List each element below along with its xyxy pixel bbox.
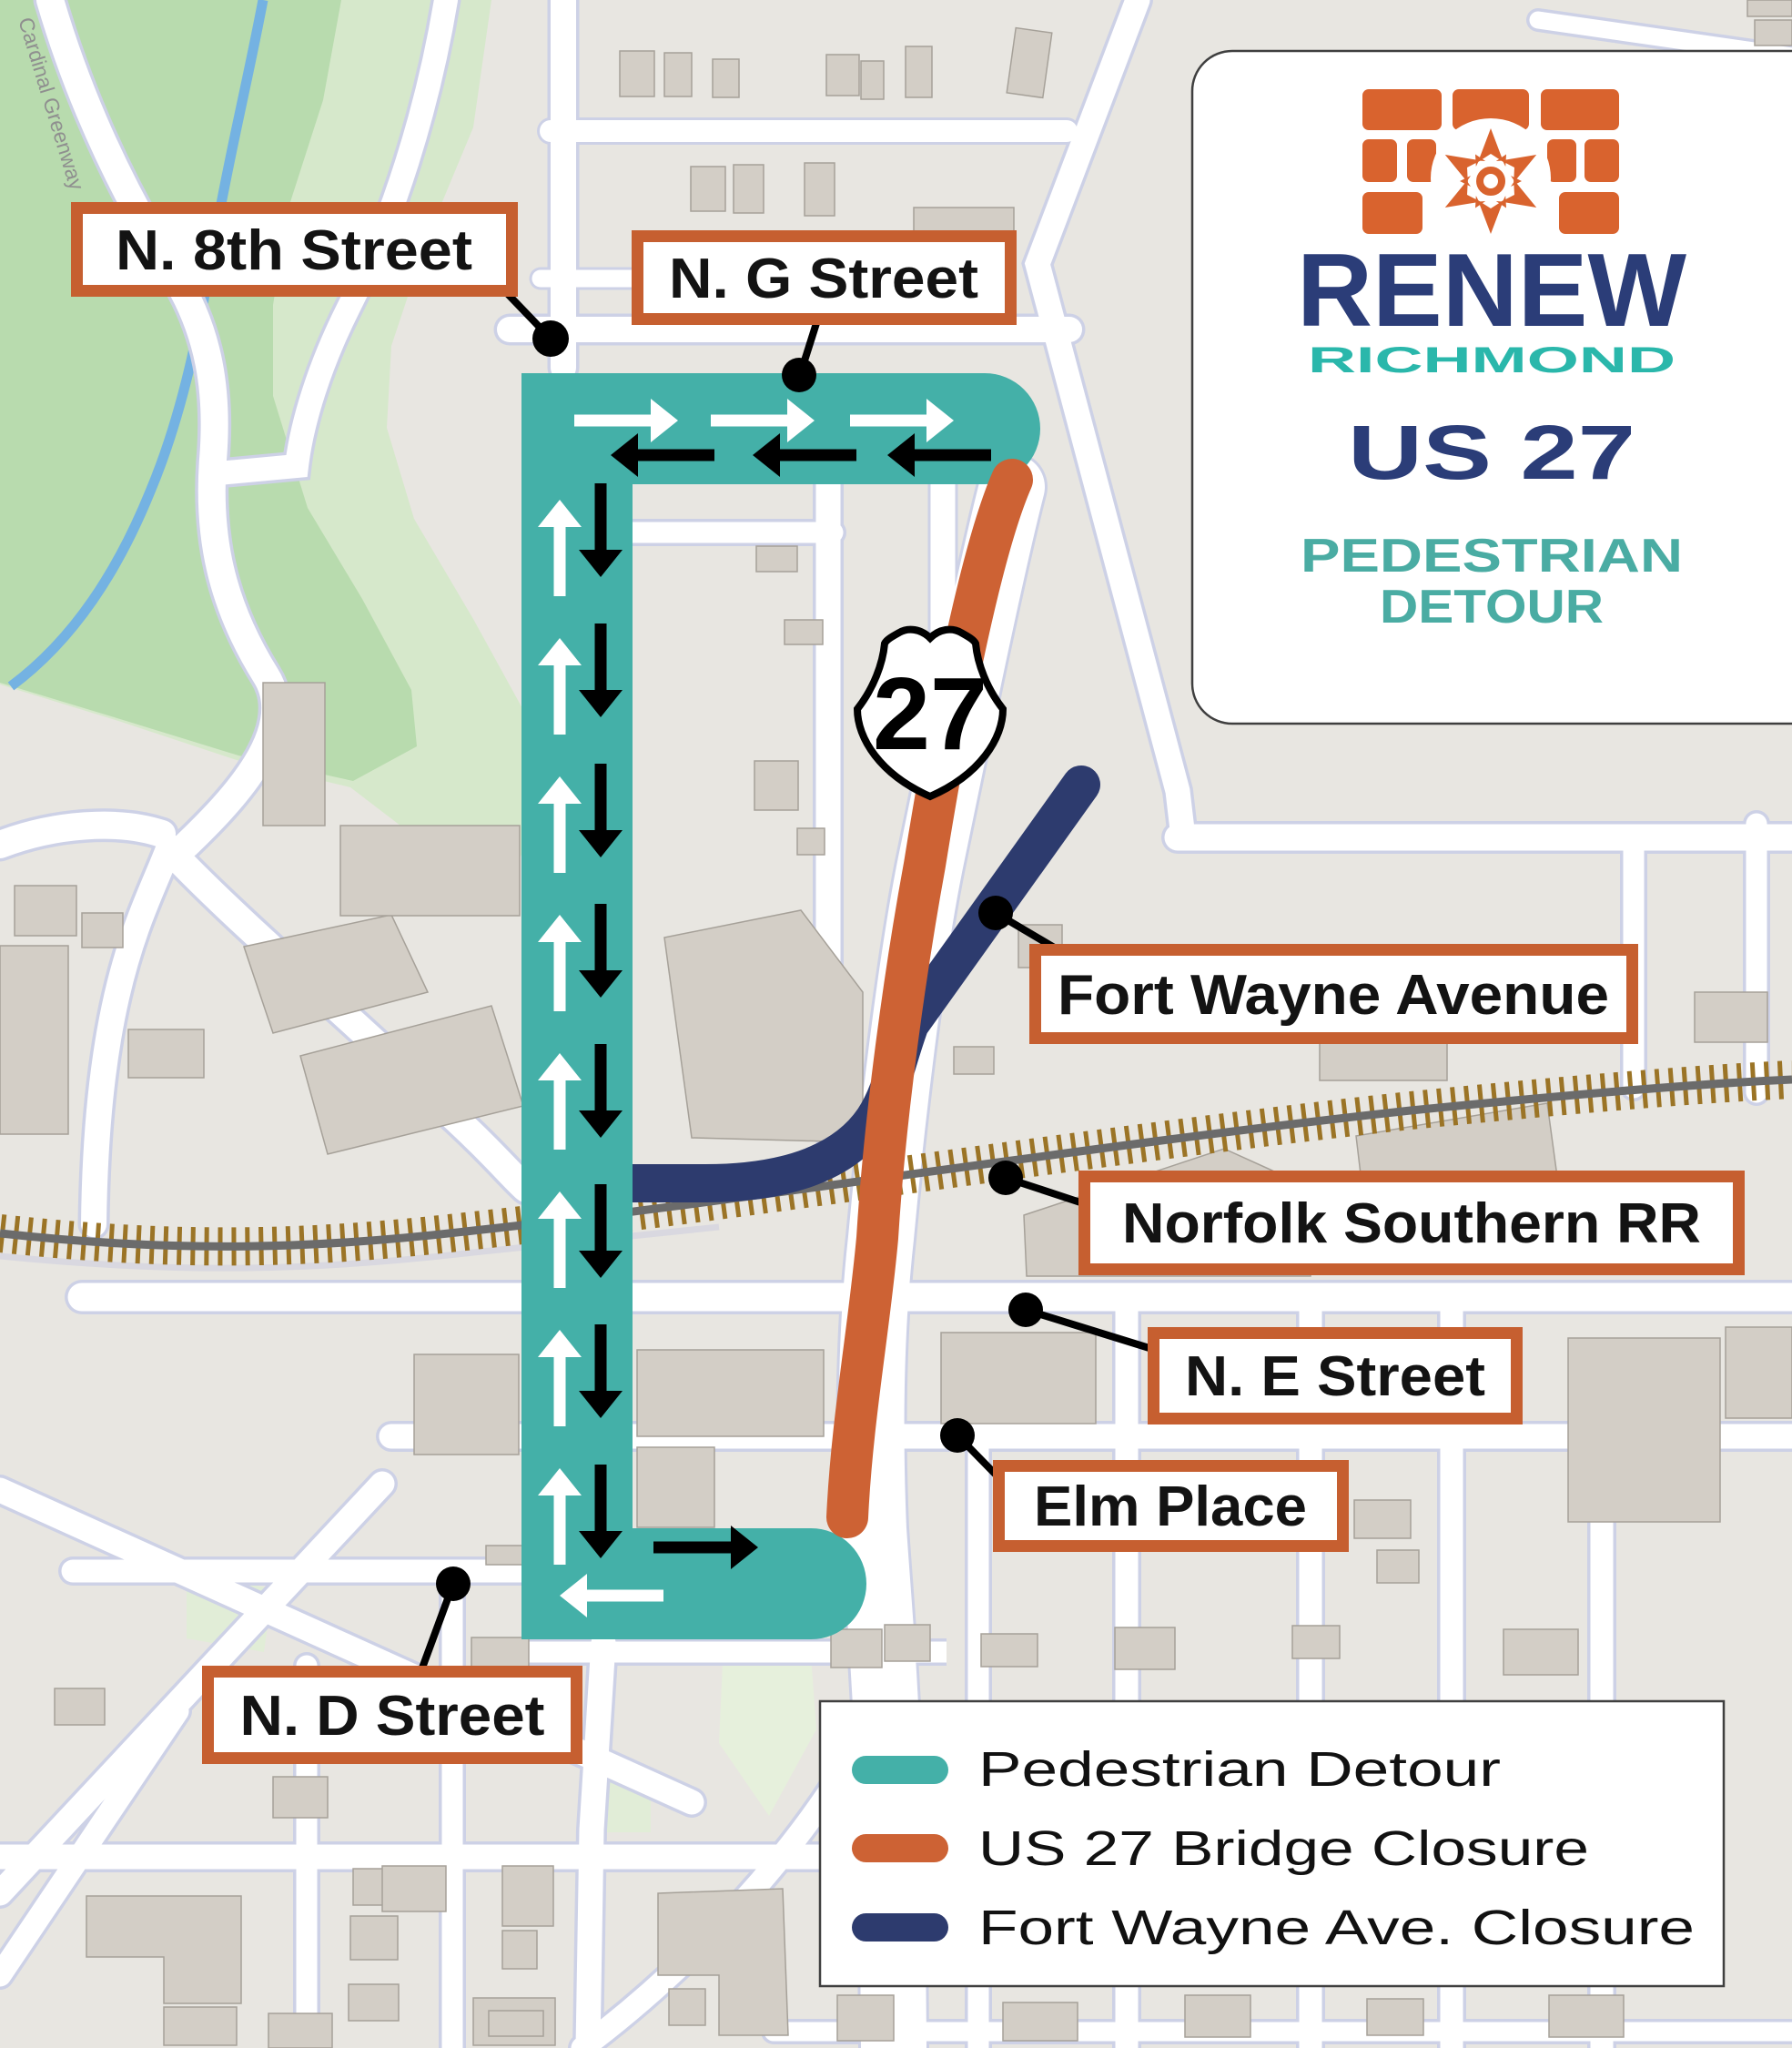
svg-text:US 27: US 27: [1348, 410, 1635, 495]
svg-text:Norfolk Southern RR: Norfolk Southern RR: [1122, 1192, 1701, 1255]
svg-text:Pedestrian Detour: Pedestrian Detour: [978, 1742, 1501, 1797]
svg-text:Fort Wayne Avenue: Fort Wayne Avenue: [1058, 964, 1609, 1027]
svg-text:PEDESTRIAN: PEDESTRIAN: [1301, 530, 1683, 583]
svg-text:N. E Street: N. E Street: [1185, 1345, 1485, 1408]
svg-text:Fort Wayne Ave. Closure: Fort Wayne Ave. Closure: [978, 1901, 1695, 1955]
svg-text:DETOUR: DETOUR: [1380, 581, 1604, 634]
svg-text:Elm Place: Elm Place: [1034, 1475, 1307, 1538]
svg-text:N. D Street: N. D Street: [240, 1685, 545, 1748]
svg-text:RICHMOND: RICHMOND: [1308, 340, 1676, 380]
svg-text:RENEW: RENEW: [1297, 233, 1686, 349]
svg-text:US 27 Bridge Closure: US 27 Bridge Closure: [978, 1821, 1589, 1876]
svg-text:N. G Street: N. G Street: [669, 248, 978, 310]
svg-text:27: 27: [873, 656, 987, 771]
svg-text:N. 8th Street: N. 8th Street: [116, 219, 472, 282]
